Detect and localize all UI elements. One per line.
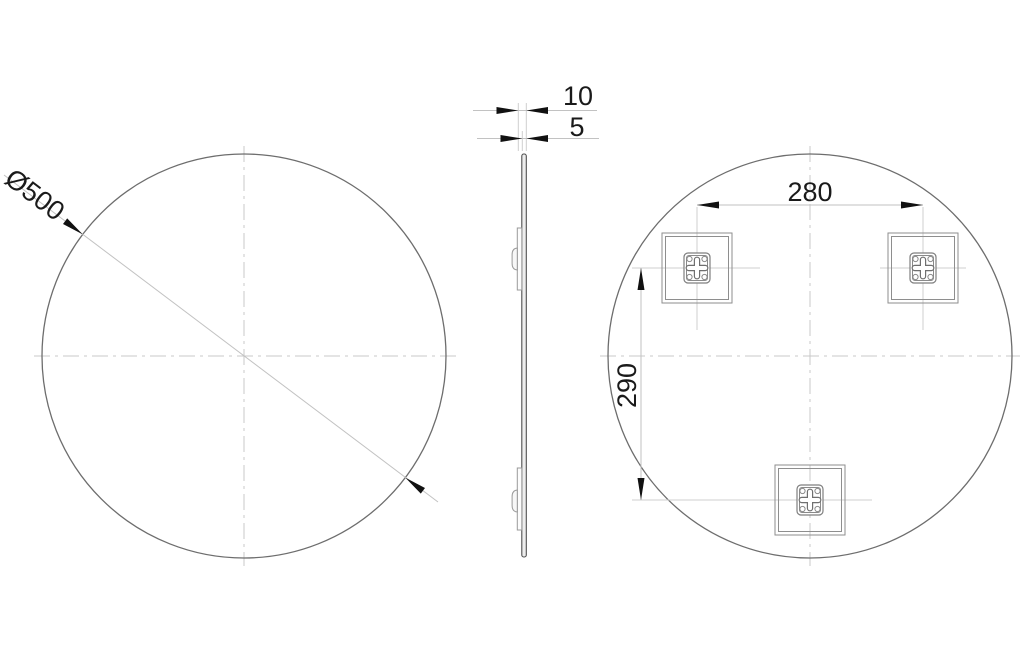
total-depth-arrow-right-icon	[526, 107, 548, 114]
horizontal-spacing-arrow-left-icon	[697, 202, 719, 209]
glass-thickness-arrow-left-icon	[501, 135, 523, 142]
side-view: 10 5	[473, 81, 599, 557]
horizontal-spacing-label: 280	[787, 177, 832, 207]
vertical-spacing-label: 290	[612, 363, 642, 408]
upper-clip-plate	[517, 228, 522, 290]
upper-clip-bump	[512, 248, 517, 270]
mirror-profile	[522, 154, 527, 557]
upper-clip-profile	[512, 228, 522, 290]
lower-clip-bump	[512, 490, 517, 512]
vertical-spacing-arrow-top-icon	[638, 268, 645, 290]
back-view: 280 290	[600, 146, 1020, 566]
vertical-spacing-arrow-bottom-icon	[638, 478, 645, 500]
glass-thickness-arrow-right-icon	[526, 135, 548, 142]
lower-clip-profile	[512, 468, 522, 530]
total-depth-arrow-left-icon	[497, 107, 519, 114]
lower-clip-plate	[517, 468, 522, 530]
horizontal-spacing-dimension: 280	[697, 177, 923, 209]
diameter-arrow-lower-icon	[405, 478, 425, 494]
drawing-page: Ø500 10 5	[0, 0, 1024, 657]
glass-thickness-label: 5	[569, 112, 584, 142]
total-depth-dimension: 10	[473, 81, 597, 114]
horizontal-spacing-arrow-right-icon	[901, 202, 923, 209]
total-depth-label: 10	[563, 81, 593, 111]
technical-drawing-canvas: Ø500 10 5	[0, 0, 1024, 657]
front-view: Ø500	[0, 146, 456, 566]
diameter-arrow-upper-icon	[63, 218, 83, 234]
glass-thickness-dimension: 5	[477, 112, 599, 142]
